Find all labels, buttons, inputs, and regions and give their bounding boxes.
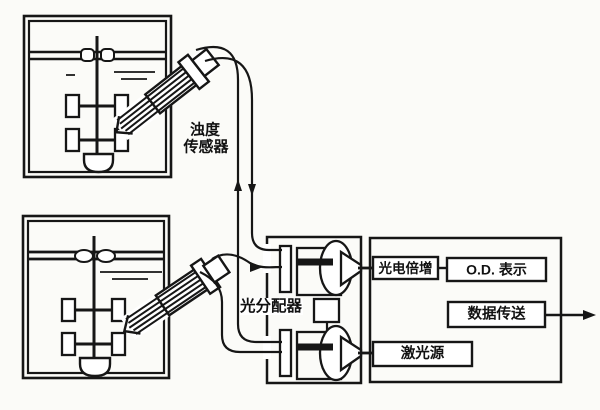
schematic-page: 光电倍增 O.D. 表示 数据传送 激光源 浊度 传感器 光分配器 bbox=[0, 0, 600, 410]
light-distributor-label: 光分配器 bbox=[239, 296, 303, 315]
optical-unit-bottom bbox=[280, 326, 361, 380]
tank-lid-plate bbox=[28, 252, 164, 259]
photomultiplier-label: 光电倍增 bbox=[378, 260, 433, 276]
bottom-baffle-dish bbox=[80, 358, 110, 376]
wall-gap-top bbox=[263, 244, 271, 273]
optical-unit-top bbox=[280, 241, 361, 295]
liquid-level-marks bbox=[100, 272, 162, 279]
shaft-coupling-left bbox=[81, 49, 94, 61]
tank-inner-wall bbox=[28, 221, 164, 373]
data-transfer-label: 数据传送 bbox=[468, 305, 526, 323]
turbidity-sensor-label-line1: 浊度 bbox=[190, 121, 221, 139]
tank-outer-wall bbox=[23, 216, 169, 378]
turbidity-measurement-schematic: 光电倍增 O.D. 表示 数据传送 激光源 浊度 传感器 光分配器 bbox=[0, 0, 600, 410]
electronics-cabinet: 光电倍增 O.D. 表示 数据传送 激光源 bbox=[358, 238, 596, 382]
impeller-paddle bbox=[66, 129, 79, 151]
flow-arrow-up-icon bbox=[234, 179, 242, 191]
wall-gap-bottom bbox=[263, 336, 271, 359]
bottom-baffle-dish bbox=[84, 154, 113, 172]
impeller-paddle bbox=[62, 299, 75, 321]
flow-arrow-right-icon bbox=[250, 262, 263, 272]
coupler-block bbox=[314, 299, 339, 322]
impeller-paddle bbox=[112, 333, 125, 355]
slit-plate bbox=[280, 246, 291, 292]
impeller-paddle bbox=[62, 333, 75, 355]
laser-source-label: 激光源 bbox=[401, 344, 445, 362]
shaft-coupling-right bbox=[97, 250, 115, 262]
od-display-label: O.D. 表示 bbox=[466, 262, 527, 278]
turbidity-sensor-label-line2: 传感器 bbox=[182, 138, 229, 156]
impeller-paddle bbox=[66, 95, 79, 117]
shaft-coupling-left bbox=[75, 250, 93, 262]
turbidity-probe-bottom bbox=[115, 249, 235, 345]
flow-arrow-down-icon bbox=[248, 184, 256, 196]
fermenter-tank-bottom bbox=[23, 216, 169, 378]
liquid-level-marks bbox=[66, 72, 155, 79]
data-output-arrow-icon bbox=[583, 310, 596, 320]
shaft-coupling-right bbox=[101, 49, 114, 61]
